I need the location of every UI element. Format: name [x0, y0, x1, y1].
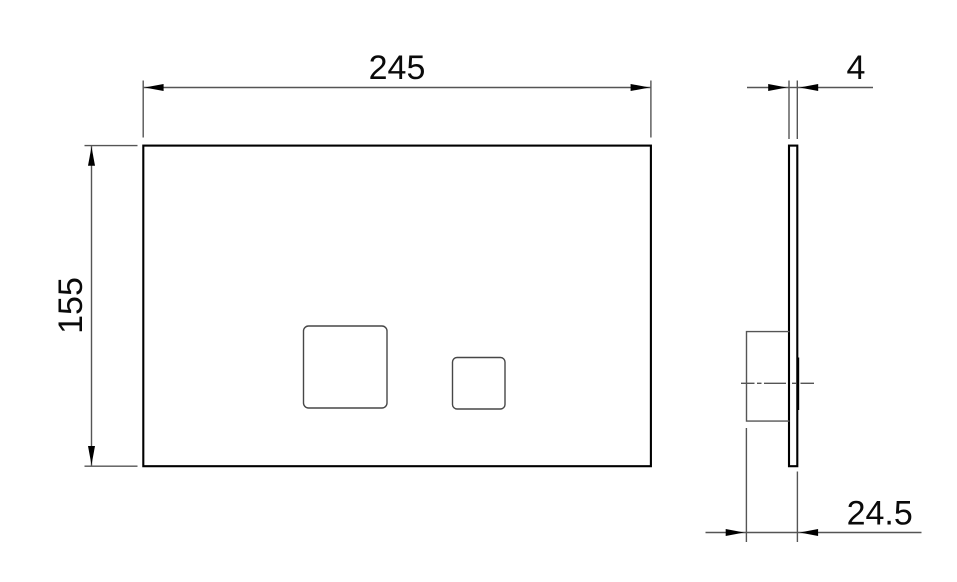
svg-text:155: 155 — [52, 277, 90, 334]
svg-text:245: 245 — [369, 49, 426, 87]
svg-text:4: 4 — [847, 49, 866, 87]
svg-text:24.5: 24.5 — [847, 495, 913, 533]
